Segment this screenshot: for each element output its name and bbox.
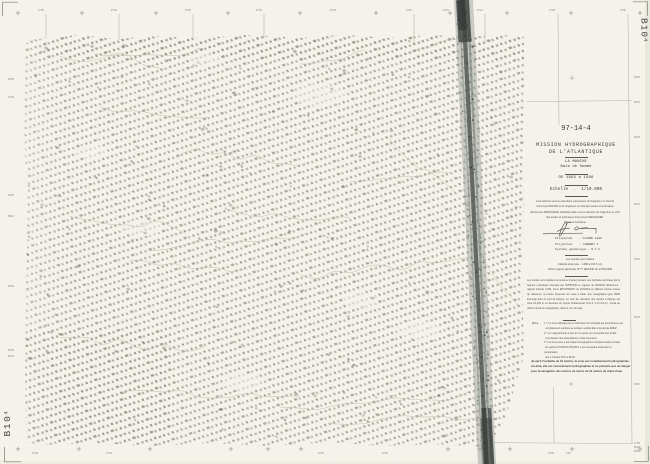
svg-text:45'30: 45'30	[8, 78, 14, 81]
svg-text:47'00: 47'00	[620, 9, 626, 12]
svg-text:47'40: 47'40	[106, 452, 112, 455]
svg-text:50'10: 50'10	[8, 215, 14, 218]
svg-text:47'05: 47'05	[634, 442, 640, 445]
svg-text:50'05: 50'05	[634, 316, 640, 319]
svg-text:47'25: 47'25	[330, 9, 336, 12]
svg-text:47'35: 47'35	[185, 9, 191, 12]
svg-text:50'05: 50'05	[8, 349, 14, 352]
svg-text:47'20: 47'20	[406, 9, 412, 12]
svg-text:45'20: 45'20	[634, 258, 640, 261]
svg-text:47'40: 47'40	[111, 9, 117, 12]
svg-text:45'15: 45'15	[634, 383, 640, 386]
svg-text:47'15: 47'15	[443, 9, 449, 12]
svg-text:50'10: 50'10	[634, 203, 640, 206]
svg-text:47'10: 47'10	[477, 9, 483, 12]
svg-text:47'30: 47'30	[256, 9, 262, 12]
svg-text:50'00: 50'00	[634, 446, 640, 449]
svg-text:45'25: 45'25	[634, 136, 640, 139]
svg-text:45'20: 45'20	[8, 285, 14, 288]
svg-text:47'45: 47'45	[38, 9, 44, 12]
svg-text:50'15: 50'15	[634, 101, 640, 104]
svg-text:47'45: 47'45	[32, 452, 38, 455]
svg-text:1'00: 1'00	[566, 452, 571, 455]
svg-text:47'25: 47'25	[318, 452, 324, 455]
svg-text:47'45: 47'45	[8, 96, 14, 99]
svg-text:45'25: 45'25	[8, 194, 14, 197]
svg-text:45'15: 45'15	[8, 355, 14, 358]
svg-text:45'30: 45'30	[634, 76, 640, 79]
svg-text:47'20: 47'20	[382, 452, 388, 455]
svg-text:47'05: 47'05	[549, 9, 555, 12]
svg-text:47'05: 47'05	[548, 452, 554, 455]
svg-text:45'10: 45'10	[634, 450, 640, 453]
